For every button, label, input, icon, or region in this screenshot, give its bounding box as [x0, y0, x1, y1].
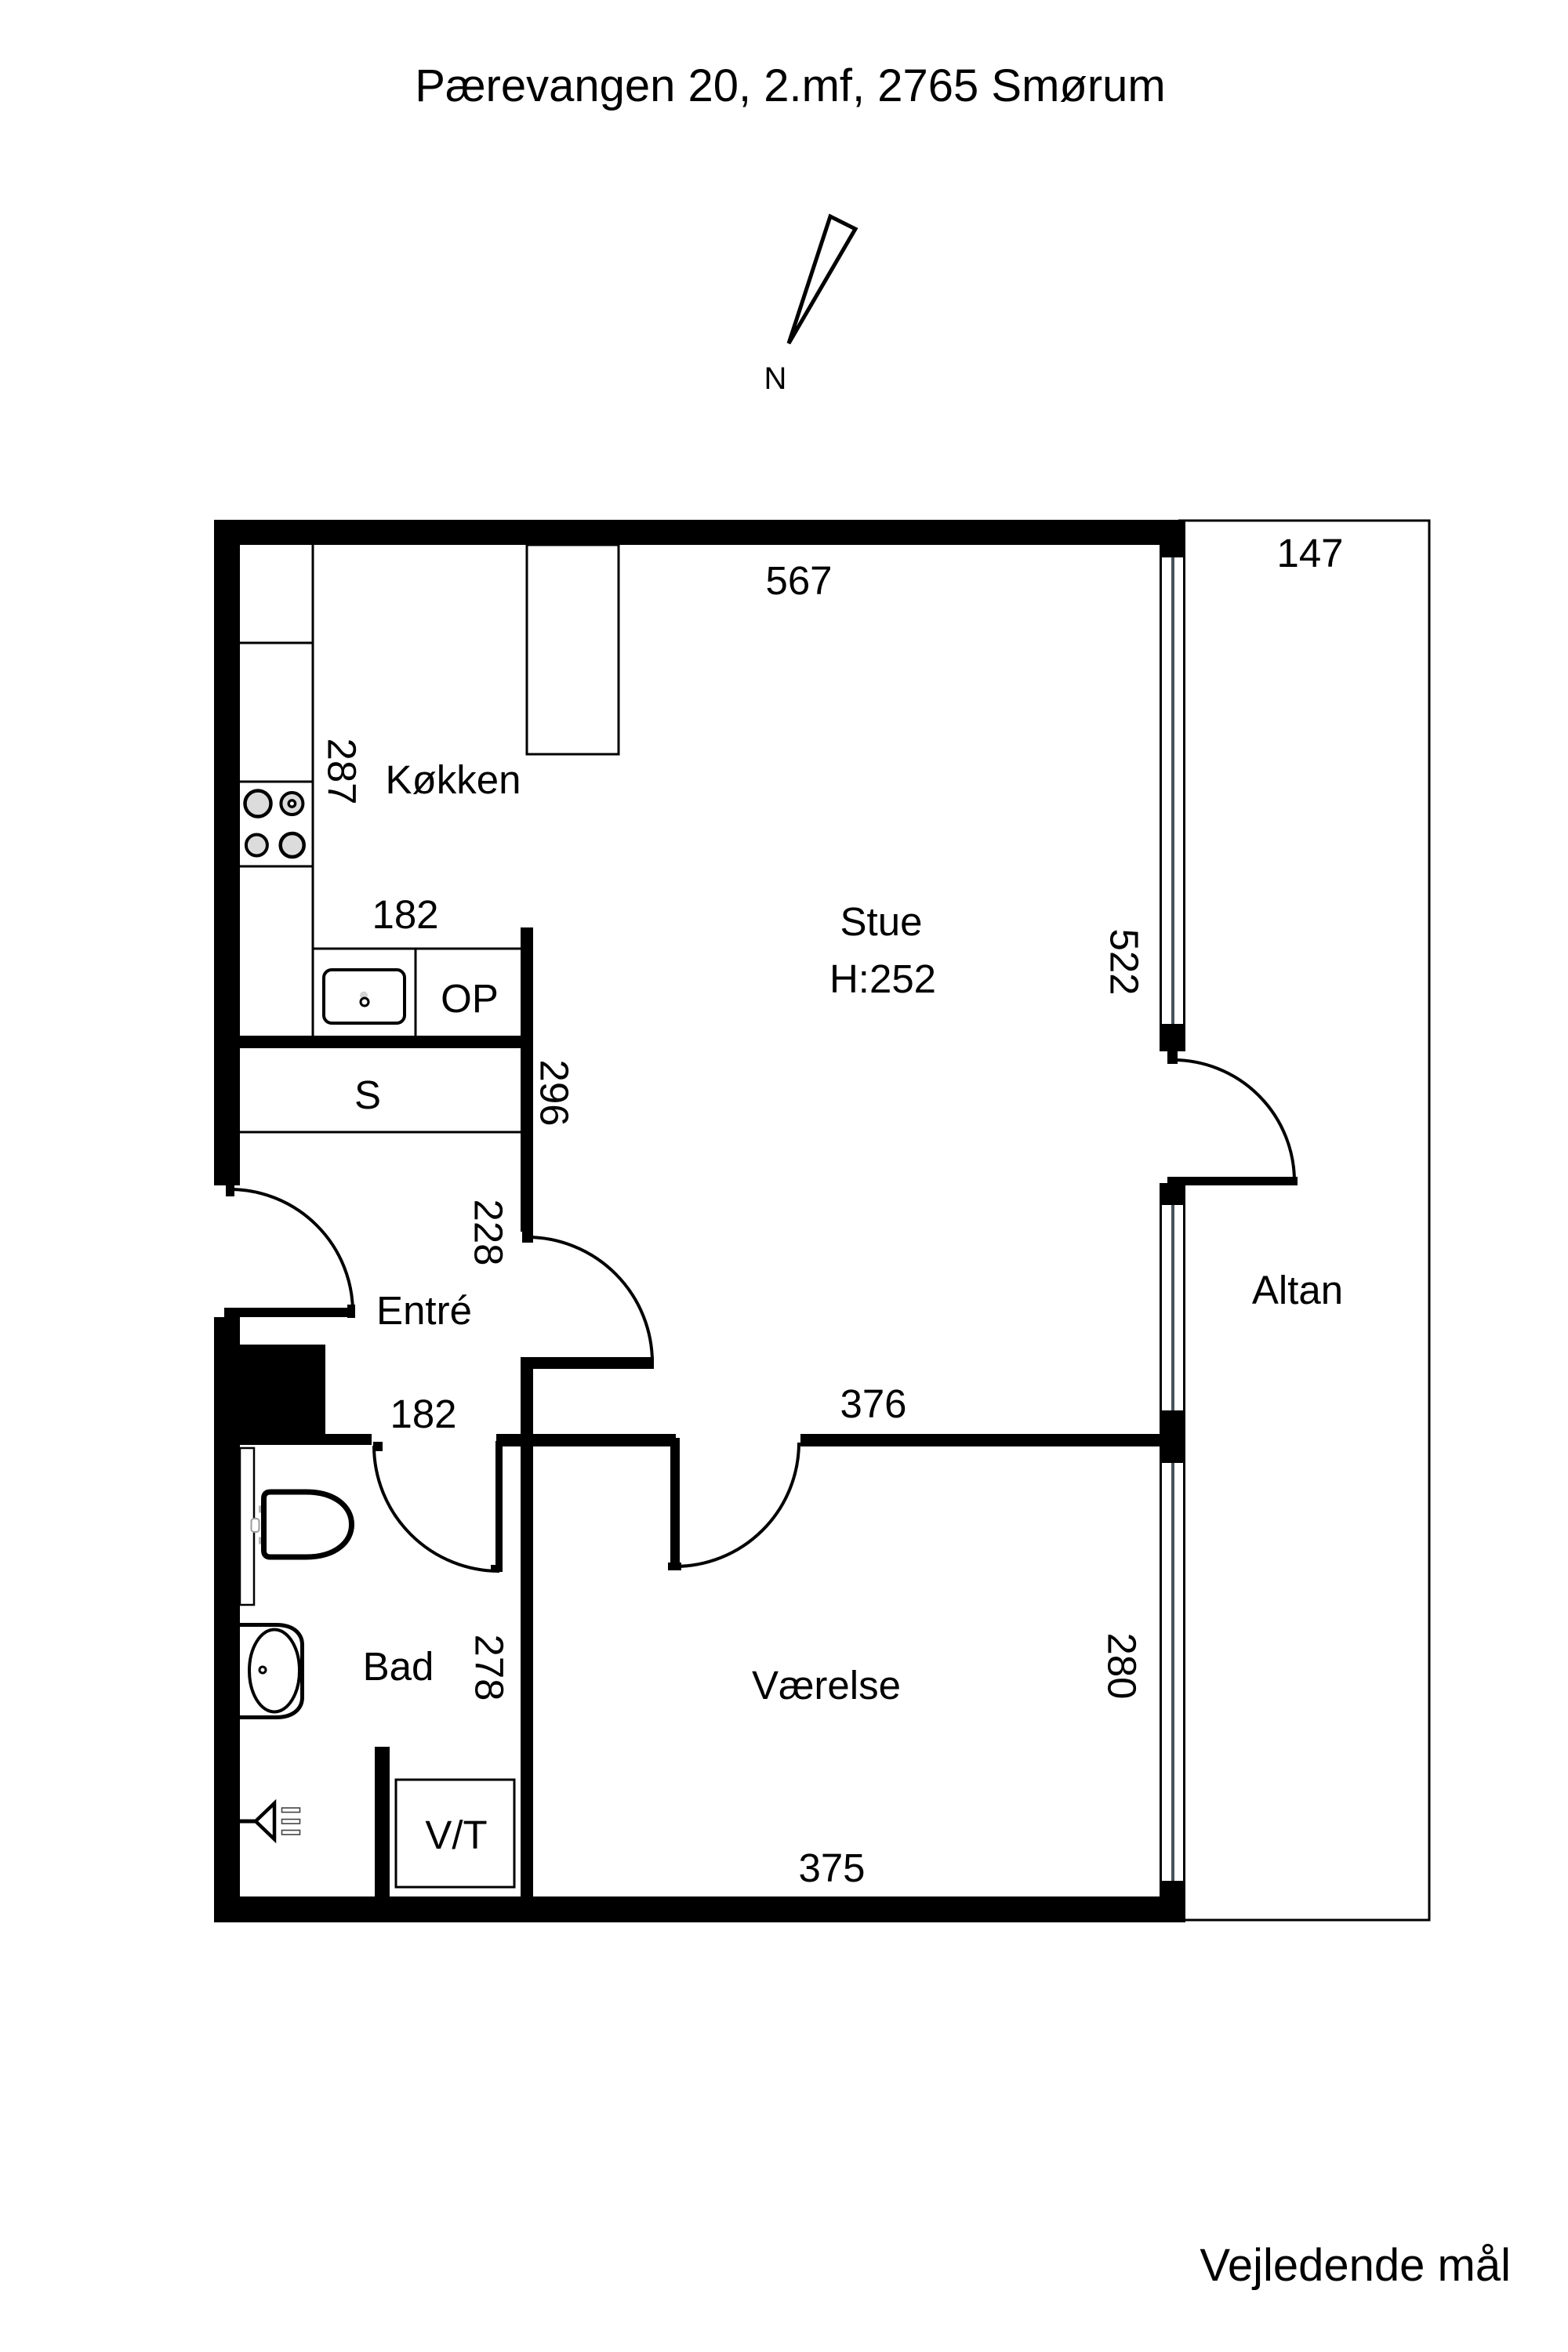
svg-text:Pærevangen 20, 2.mf, 2765 Smør: Pærevangen 20, 2.mf, 2765 Smørum — [415, 60, 1165, 111]
svg-text:Værelse: Værelse — [752, 1663, 901, 1708]
svg-text:567: 567 — [765, 558, 832, 603]
svg-text:Bad: Bad — [363, 1644, 434, 1689]
svg-text:182: 182 — [390, 1392, 456, 1436]
svg-text:376: 376 — [840, 1381, 906, 1426]
svg-text:H:252: H:252 — [829, 956, 936, 1001]
svg-text:280: 280 — [1100, 1632, 1145, 1699]
svg-text:V/T: V/T — [425, 1813, 487, 1857]
svg-text:228: 228 — [466, 1199, 511, 1265]
svg-text:S: S — [354, 1073, 381, 1117]
svg-text:Entré: Entré — [376, 1288, 472, 1333]
svg-text:Stue: Stue — [840, 899, 923, 944]
svg-text:OP: OP — [441, 976, 499, 1021]
svg-text:Altan: Altan — [1252, 1268, 1343, 1312]
svg-text:147: 147 — [1276, 531, 1343, 575]
svg-text:182: 182 — [372, 892, 438, 937]
svg-text:278: 278 — [467, 1634, 512, 1700]
svg-text:Køkken: Køkken — [386, 757, 521, 802]
svg-text:Vejledende mål: Vejledende mål — [1200, 2240, 1511, 2291]
svg-text:N: N — [764, 361, 787, 396]
svg-text:287: 287 — [320, 738, 365, 804]
svg-text:375: 375 — [798, 1846, 865, 1890]
svg-text:296: 296 — [532, 1059, 577, 1126]
svg-text:522: 522 — [1102, 928, 1147, 995]
